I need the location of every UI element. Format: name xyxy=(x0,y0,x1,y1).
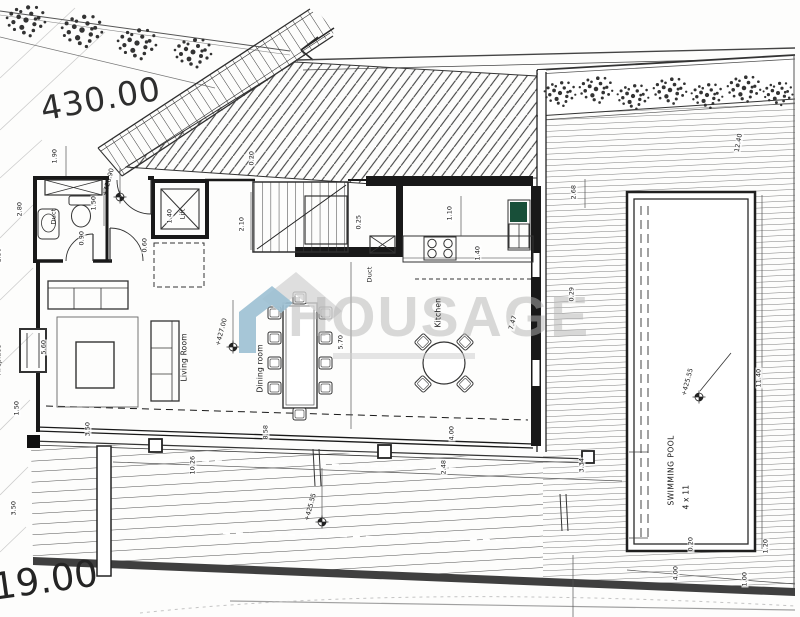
dimension-label: 4.00 xyxy=(449,425,456,441)
dimension-label: 3.50 xyxy=(85,421,92,437)
dimension-label: 2.10 xyxy=(239,216,246,232)
room-label-living-room: Living Room xyxy=(181,333,189,381)
dimension-label: 1.50 xyxy=(14,400,21,416)
dimension-label: 0.25 xyxy=(356,214,363,230)
dimension-label: 0.90 xyxy=(79,230,86,246)
dimension-label: 5.60 xyxy=(41,339,48,355)
dimension-label: 2.80 xyxy=(17,201,24,217)
dimension-label: 2.68 xyxy=(571,184,578,200)
dimension-label: 10.26 xyxy=(190,455,197,476)
room-label-swimming-pool: SWIMMING POOL xyxy=(668,435,676,505)
room-label-fireplace: Fireplace xyxy=(0,345,2,376)
dimension-label: 1.20 xyxy=(763,538,770,554)
dimension-label: 1.00 xyxy=(742,571,749,587)
window-gap xyxy=(533,253,540,277)
room-label-duct: Duct xyxy=(367,266,374,282)
fridge xyxy=(510,202,527,222)
room-label-duct: Duct xyxy=(51,208,58,224)
room-label-lift: Lift xyxy=(180,209,187,220)
toilet-bowl xyxy=(72,205,91,227)
rug xyxy=(57,317,138,407)
door-swing-arc xyxy=(110,228,143,261)
floor-plan-page: HOUSAGE 430.00 419.00 Duct Lift Duct Liv… xyxy=(0,0,800,617)
dimension-label: 0.60 xyxy=(142,237,149,253)
room-label-dining-room: Dining room xyxy=(257,344,265,392)
sofa xyxy=(151,321,179,401)
window-gap xyxy=(533,360,540,386)
dimension-label: 1.40 xyxy=(475,245,482,261)
staircase xyxy=(253,182,348,252)
dimension-label: 0.29 xyxy=(569,286,576,302)
dimension-label: 4.00 xyxy=(673,565,680,581)
dimension-label: 0.20 xyxy=(688,536,695,552)
dimension-label: 2.48 xyxy=(441,459,448,475)
dimension-label: 1.40 xyxy=(167,208,174,224)
dimension-label: 11.40 xyxy=(756,368,763,389)
dimension-label: 3.34 xyxy=(579,457,586,473)
dimension-label: 1.50 xyxy=(91,195,98,211)
watermark-tagline-strip xyxy=(333,353,475,359)
dimension-label: 8.58 xyxy=(263,424,270,440)
room-label-kitchen: Kitchen xyxy=(435,298,443,328)
dimension-label: 1.50 xyxy=(0,247,2,263)
dimension-label: 5.70 xyxy=(338,334,345,350)
sofa xyxy=(48,281,128,309)
dimension-label: 3.50 xyxy=(11,500,18,516)
pool-size-label: 4 x 11 xyxy=(683,485,691,510)
dimension-label: 0.20 xyxy=(249,150,256,166)
dimension-label: 1.90 xyxy=(52,148,59,164)
coffee-table xyxy=(76,342,114,388)
dimension-label: 1.10 xyxy=(447,205,454,221)
